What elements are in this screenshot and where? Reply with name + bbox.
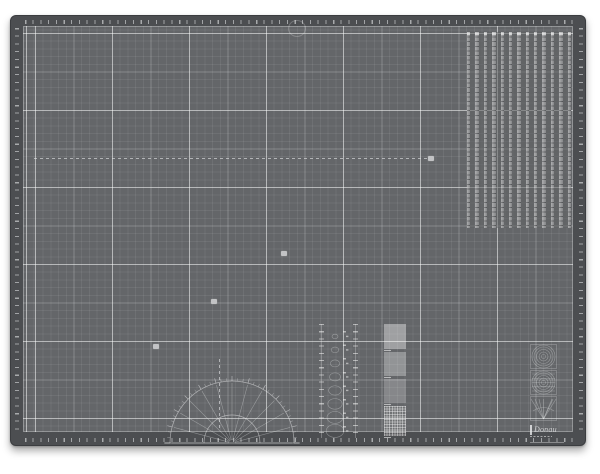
angle-label-marker [211,299,217,304]
hatch-swatch [384,324,406,349]
cutting-strip [492,32,495,228]
swatch-label-mark [384,437,391,439]
swatch-label-mark [384,404,391,406]
swatch-label-mark [384,350,391,352]
shape-template-fan-lines [530,396,557,421]
hatch-swatch [384,406,406,436]
micro-ruler [353,324,358,438]
cutting-strip [501,32,504,228]
brand-logo-row: Donau [530,425,557,435]
cutting-strip [517,32,520,228]
guide-dashed-line [219,359,220,431]
swatch-label-mark [384,377,391,379]
page: { "scene": { "description": "Gray self-h… [0,0,600,474]
cutting-strip [467,32,470,228]
shape-template-concentric-circles [530,344,557,369]
micro-ruler [319,324,324,438]
cutting-mat: Donau [10,15,586,446]
parallel-strip-ruler-panel [467,32,571,228]
guide-dashed-line [34,158,428,159]
cutting-strip [568,32,571,228]
size-number-column [343,331,346,435]
brand-logo-text: Donau [534,425,557,435]
brand-logo: Donau [530,425,564,443]
hatch-swatch [384,379,406,403]
cutting-strip [542,32,545,228]
brand-logo-subline [530,436,552,437]
cutting-strip [551,32,554,228]
hatch-swatch-column [384,324,406,439]
shape-template-column [530,344,557,421]
angle-label-marker [281,251,287,256]
cutting-strip [534,32,537,228]
angle-label-marker [428,156,434,161]
hatch-swatch [384,352,406,376]
edge-ruler-left [15,28,19,432]
cutting-strip [559,32,562,228]
cutting-strip [475,32,478,228]
cutting-strip [509,32,512,228]
brand-logo-flag-icon [530,425,532,435]
edge-ruler-right [579,28,583,432]
hang-hole-mark [288,20,306,37]
cutting-strip [484,32,487,228]
angle-label-marker [153,344,159,349]
shape-template-lined-circles [530,370,557,395]
protractor [156,373,308,445]
cutting-strip [526,32,529,228]
